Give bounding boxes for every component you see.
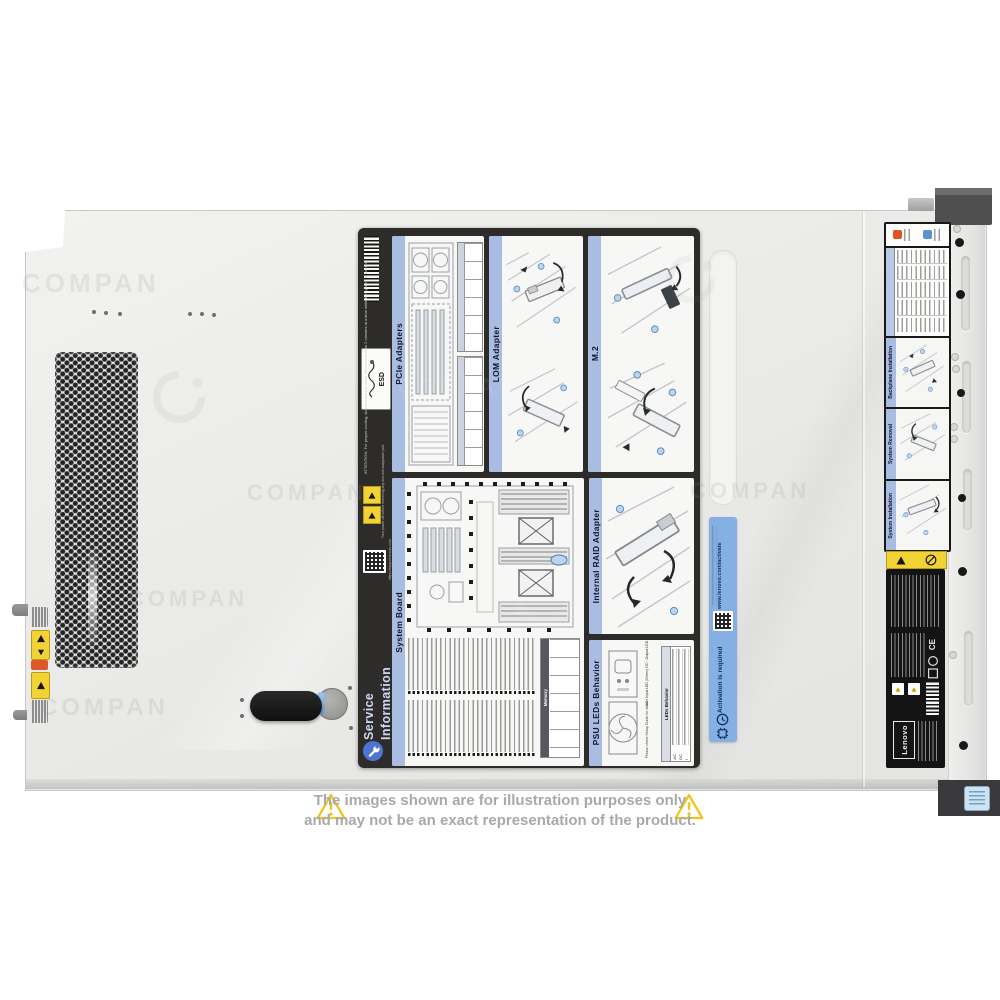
- warning-chip: [892, 683, 904, 695]
- metal-bracket: [908, 198, 934, 211]
- watermark-text: COMPAN: [40, 694, 169, 722]
- service-icon: [362, 740, 384, 767]
- power-led-swatch: [893, 230, 902, 239]
- screw-head: [951, 353, 959, 361]
- memory-table: Memory: [540, 638, 580, 758]
- psu-led-note: Please check Setup Guide for details.: [645, 710, 655, 758]
- pcie-riser-table: [457, 242, 483, 352]
- watermark-text: COMPAN: [128, 586, 248, 612]
- activation-fine-print: [712, 525, 717, 605]
- flange-slot: [964, 631, 973, 706]
- regulatory-barcode: [926, 681, 939, 715]
- flange-slot: [962, 361, 971, 433]
- procedure-sketch: [897, 481, 947, 543]
- esd-text: ESD: [379, 372, 386, 386]
- id-led-swatch: [923, 230, 932, 239]
- screw-head: [950, 435, 958, 443]
- panel-internal-raid: Internal RAID Adapter: [589, 478, 694, 634]
- certification-marks: [926, 655, 940, 681]
- panel-system-installation: System Installation: [886, 481, 949, 550]
- watermark-text: COMPAN: [22, 268, 160, 299]
- panel-title-bar: PSU LEDs Behavior: [589, 640, 602, 766]
- power-warning-note: Turn power off before removing any non-h…: [381, 486, 390, 538]
- panel-lom-adapter: LOM Adapter: [489, 236, 583, 472]
- rivet: [188, 312, 192, 316]
- regulatory-label: CE Lenovo: [886, 569, 945, 768]
- panel-system-removal: System Removal: [886, 409, 949, 478]
- service-info-title: Service Information: [362, 590, 393, 740]
- front-io-legend-label: [884, 222, 951, 338]
- front-io-table: [886, 248, 949, 336]
- rivet: [212, 313, 216, 317]
- psu-diagram: [606, 646, 640, 760]
- watermark-logo: [150, 368, 208, 426]
- panel-pcie-adapters: PCIe Adapters: [392, 236, 484, 472]
- watermark-text: COMPAN: [398, 374, 518, 400]
- vent-highlight: [88, 545, 97, 645]
- rivet: [118, 312, 122, 316]
- info-label-small: [31, 607, 48, 627]
- rivet: [349, 726, 353, 730]
- panel-title-bar: PCIe Adapters: [392, 236, 405, 472]
- m2-install-diagram: [604, 356, 692, 470]
- system-board-legend: [408, 638, 536, 758]
- watermark-logo: [510, 560, 580, 630]
- rivet: [92, 310, 96, 314]
- screw-head: [952, 365, 960, 373]
- warning-triangle-icon: [37, 634, 45, 641]
- ce-mark: CE: [928, 639, 937, 650]
- panel-backplane-installation: Backplane Installation: [886, 338, 949, 407]
- lenovo-logo: Lenovo: [893, 721, 915, 759]
- lom-install-diagram: [503, 238, 581, 352]
- warning-chip: [908, 683, 920, 695]
- rack-latch-handle-top: [935, 188, 992, 225]
- warning-icon-label: [363, 506, 381, 524]
- screw-hole: [956, 290, 965, 299]
- rivet: [348, 686, 352, 690]
- hinge-pin: [13, 710, 27, 720]
- screw-hole: [958, 567, 967, 576]
- attention-note: ATTENTION: For proper cooling, do not le…: [363, 414, 389, 474]
- rivet: [240, 698, 244, 702]
- screw-hole: [958, 494, 966, 502]
- cover-release-latch: [250, 691, 322, 721]
- support-qr-code: [363, 550, 386, 573]
- screw-head: [949, 651, 957, 659]
- front-warning-label: [886, 551, 947, 569]
- panel-psu-leds: PSU LEDs Behavior AC : Input LED (Green)…: [589, 640, 694, 766]
- screw-hole: [959, 741, 968, 750]
- activation-title: Activation is required: [717, 637, 724, 713]
- no-touch-icon: [925, 554, 937, 566]
- procedure-sketch: [897, 409, 947, 475]
- rack-flange: [949, 211, 985, 788]
- watermark-text: COMPAN: [247, 480, 367, 506]
- rivet: [240, 714, 244, 718]
- psu-led-table: LEDs Behavior AC DC !: [661, 646, 691, 762]
- panel-title-bar: LOM Adapter: [489, 236, 502, 472]
- activation-label: www.lenovo.com/activate Activation is re…: [709, 517, 737, 742]
- warning-triangle-icon: [38, 649, 44, 654]
- rivet: [200, 312, 204, 316]
- screw-head: [950, 423, 958, 431]
- pcie-riser-table: [457, 356, 483, 466]
- front-procedure-labels: Backplane Installation System Removal Sy…: [884, 336, 951, 552]
- screw-head: [953, 225, 961, 233]
- cpu-gear-icon: [716, 727, 729, 740]
- panel-title-bar: System Board: [392, 478, 405, 766]
- procedure-sketch: [897, 338, 947, 404]
- warning-triangle-icon: [37, 682, 45, 689]
- chassis-bottom-edge: [26, 779, 984, 789]
- alert-label: [31, 660, 48, 670]
- clock-icon: [716, 713, 729, 726]
- screw-hole: [957, 389, 965, 397]
- activation-qr-code: [713, 611, 733, 631]
- hinge-pin: [12, 604, 28, 616]
- panel-title-bar: M.2: [588, 236, 601, 472]
- watermark-logo: [664, 252, 718, 306]
- disclaimer-line2: and may not be an exact representation o…: [0, 811, 1000, 831]
- rivet: [104, 311, 108, 315]
- panel-title-bar: Internal RAID Adapter: [589, 478, 602, 634]
- cover-seam-highlight: [863, 212, 865, 787]
- disclaimer-text: The images shown are for illustration pu…: [0, 791, 1000, 830]
- pcie-rear-diagram: [407, 240, 455, 468]
- activation-url: www.lenovo.com/activate: [717, 523, 723, 609]
- raid-install-diagram: [604, 480, 692, 632]
- product-photo: ESD ATTENTION: For proper cooling, do no…: [0, 0, 1000, 1000]
- watermark-text: COMPAN: [690, 478, 810, 504]
- disclaimer-line1: The images shown are for illustration pu…: [0, 791, 1000, 811]
- warning-triangle-icon: [897, 556, 906, 564]
- screw-hole: [955, 238, 964, 247]
- warning-label: [31, 630, 50, 660]
